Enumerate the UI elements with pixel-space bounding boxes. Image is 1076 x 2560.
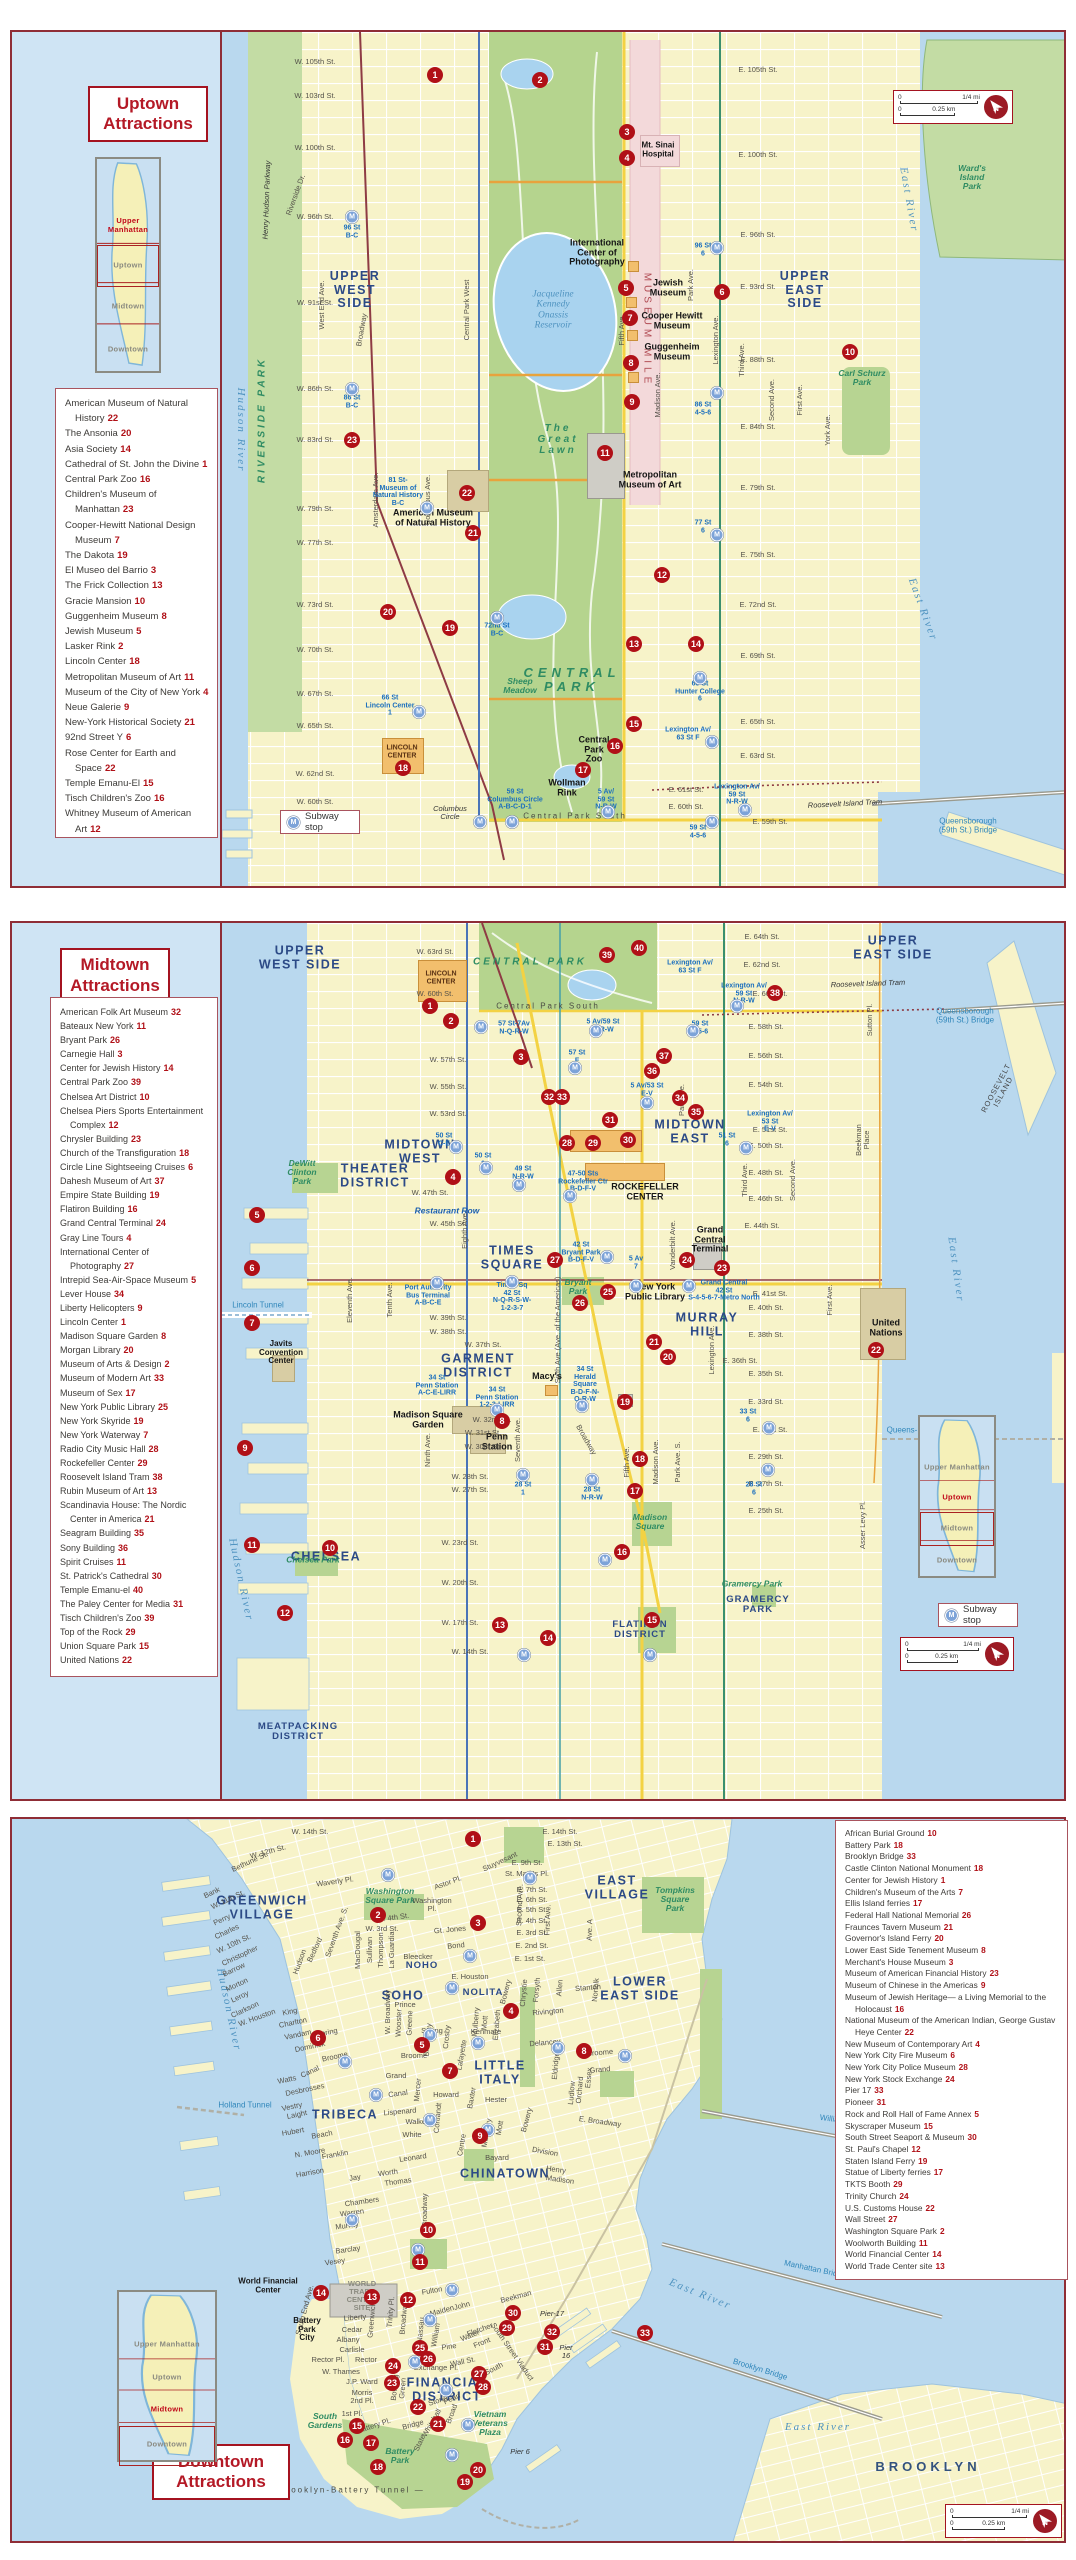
locator-upper-manhattan[interactable]: Upper Manhattan (119, 2340, 215, 2349)
attraction-new-york-skyride[interactable]: New York Skyride19 (60, 1414, 213, 1428)
compass-icon: N (1033, 2509, 1057, 2533)
attraction-bryant-park[interactable]: Bryant Park26 (60, 1033, 213, 1047)
attraction-circle-line-sightseeing-cruises[interactable]: Circle Line Sightseeing Cruises6 (60, 1160, 213, 1174)
attraction-central-park-zoo[interactable]: Central Park Zoo39 (60, 1075, 213, 1089)
attraction-church-of-the-transfiguration[interactable]: Church of the Transfiguration18 (60, 1146, 213, 1160)
attraction-guggenheim-museum[interactable]: Guggenheim Museum8 (65, 609, 213, 624)
attraction-pier-17[interactable]: Pier 1733 (845, 2085, 1063, 2097)
attraction-carnegie-hall[interactable]: Carnegie Hall3 (60, 1047, 213, 1061)
locator-uptown[interactable]: Uptown (119, 2373, 215, 2382)
locator-downtown[interactable]: Downtown (920, 1556, 994, 1565)
attraction-madison-square-garden[interactable]: Madison Square Garden8 (60, 1329, 213, 1343)
nyc-attractions-map-page: UPPER WEST SIDEUPPER EAST SIDEHudson Riv… (0, 0, 1076, 2560)
attraction-world-financial-center[interactable]: World Financial Center14 (845, 2249, 1063, 2261)
attraction-center-for-jewish-history[interactable]: Center for Jewish History1 (845, 1875, 1063, 1887)
attraction-top-of-the-rock[interactable]: Top of the Rock29 (60, 1625, 213, 1639)
attraction-trinity-church[interactable]: Trinity Church24 (845, 2191, 1063, 2203)
attraction-gracie-mansion[interactable]: Gracie Mansion10 (65, 594, 213, 609)
locator-downtown[interactable]: Downtown (119, 2440, 215, 2449)
attraction-brooklyn-bridge[interactable]: Brooklyn Bridge33 (845, 1851, 1063, 1863)
subway-stop-icon: M (287, 816, 300, 829)
locator-midtown[interactable]: Midtown (97, 302, 159, 311)
svg-text:N: N (1042, 2518, 1048, 2527)
locator-midtown[interactable]: Midtown (920, 1524, 994, 1533)
attraction-asia-society[interactable]: Asia Society14 (65, 442, 213, 457)
attraction-new-museum-of-contemporary-art[interactable]: New Museum of Contemporary Art4 (845, 2039, 1063, 2051)
attraction-st-patrick-s-cathedral[interactable]: St. Patrick's Cathedral30 (60, 1569, 213, 1583)
attraction-liberty-helicopters[interactable]: Liberty Helicopters9 (60, 1301, 213, 1315)
svg-text:N: N (994, 1651, 1000, 1660)
attraction-the-dakota[interactable]: The Dakota19 (65, 548, 213, 563)
attraction-new-york-city-fire-museum[interactable]: New York City Fire Museum6 (845, 2050, 1063, 2062)
midtown-locator-inset: Upper Manhattan Uptown Midtown Downtown (918, 1415, 996, 1578)
attraction-children-s-museum-of-manhattan[interactable]: Children's Museum of Manhattan23 (65, 487, 213, 517)
attraction-united-nations[interactable]: United Nations22 (60, 1653, 213, 1667)
attraction-merchant-s-house-museum[interactable]: Merchant's House Museum3 (845, 1957, 1063, 1969)
attraction-lasker-rink[interactable]: Lasker Rink2 (65, 639, 213, 654)
subway-legend-label: Subway stop (963, 1604, 1011, 1626)
attraction-intrepid-sea-air-space-museum[interactable]: Intrepid Sea-Air-Space Museum5 (60, 1273, 213, 1287)
attraction-central-park-zoo[interactable]: Central Park Zoo16 (65, 472, 213, 487)
attraction-tkts-booth[interactable]: TKTS Booth29 (845, 2179, 1063, 2191)
attraction-whitney-museum-of-american-art[interactable]: Whitney Museum of American Art12 (65, 806, 213, 836)
attraction-rockefeller-center[interactable]: Rockefeller Center29 (60, 1456, 213, 1470)
attraction-metropolitan-museum-of-art[interactable]: Metropolitan Museum of Art11 (65, 670, 213, 685)
attraction-lower-east-side-tenement-museum[interactable]: Lower East Side Tenement Museum8 (845, 1945, 1063, 1957)
attraction-staten-island-ferry[interactable]: Staten Island Ferry19 (845, 2156, 1063, 2168)
attraction-sony-building[interactable]: Sony Building36 (60, 1541, 213, 1555)
attraction-tisch-children-s-zoo[interactable]: Tisch Children's Zoo39 (60, 1611, 213, 1625)
attraction-new-york-waterway[interactable]: New York Waterway7 (60, 1428, 213, 1442)
svg-text:N: N (993, 104, 999, 113)
attraction-tisch-children-s-zoo[interactable]: Tisch Children's Zoo16 (65, 791, 213, 806)
downtown-locator-inset: Upper Manhattan Uptown Midtown Downtown (117, 2290, 217, 2462)
attraction-washington-square-park[interactable]: Washington Square Park2 (845, 2226, 1063, 2238)
attraction-children-s-museum-of-the-arts[interactable]: Children's Museum of the Arts7 (845, 1887, 1063, 1899)
attraction-morgan-library[interactable]: Morgan Library20 (60, 1343, 213, 1357)
attraction-museum-of-the-city-of-new-york[interactable]: Museum of the City of New York4 (65, 685, 213, 700)
attraction-south-street-seaport-museum[interactable]: South Street Seaport & Museum30 (845, 2132, 1063, 2144)
attraction-rose-center-for-earth-and-space[interactable]: Rose Center for Earth and Space22 (65, 746, 213, 776)
attraction-museum-of-arts-design[interactable]: Museum of Arts & Design2 (60, 1357, 213, 1371)
attraction-statue-of-liberty-ferries[interactable]: Statue of Liberty ferries17 (845, 2167, 1063, 2179)
attraction-dahesh-museum-of-art[interactable]: Dahesh Museum of Art37 (60, 1174, 213, 1188)
attraction-wollman-rink[interactable]: Wollman Rink17 (65, 837, 213, 838)
attraction-roosevelt-island-tram[interactable]: Roosevelt Island Tram38 (60, 1470, 213, 1484)
attraction-temple-emanu-el[interactable]: Temple Emanu-el40 (60, 1583, 213, 1597)
attraction-the-frick-collection[interactable]: The Frick Collection13 (65, 578, 213, 593)
attraction-flatiron-building[interactable]: Flatiron Building16 (60, 1202, 213, 1216)
uptown-scale-bar: 01/4 mi 00.25 km N (893, 90, 1013, 124)
attraction-museum-of-sex[interactable]: Museum of Sex17 (60, 1386, 213, 1400)
attraction-american-folk-art-museum[interactable]: American Folk Art Museum32 (60, 1005, 213, 1019)
subway-legend-label: Subway stop (305, 811, 353, 833)
attraction-scandinavia-house-the-nordic-center-in-a[interactable]: Scandinavia House: The Nordic Center in … (60, 1498, 213, 1526)
attraction-cooper-hewitt-national-design-museum[interactable]: Cooper-Hewitt National Design Museum7 (65, 518, 213, 548)
attraction-museum-of-modern-art[interactable]: Museum of Modern Art33 (60, 1371, 213, 1385)
attraction-museum-of-jewish-heritage-a-living-memor[interactable]: Museum of Jewish Heritage— a Living Memo… (845, 1992, 1063, 2015)
attraction-st-paul-s-chapel[interactable]: St. Paul's Chapel12 (845, 2144, 1063, 2156)
midtown-subway-legend: M Subway stop (938, 1603, 1018, 1627)
attraction-el-museo-del-barrio[interactable]: El Museo del Barrio3 (65, 563, 213, 578)
attraction-empire-state-building[interactable]: Empire State Building19 (60, 1188, 213, 1202)
downtown-scale-bar: 01/4 mi 00.25 km N (945, 2504, 1062, 2538)
attraction-woolworth-building[interactable]: Woolworth Building11 (845, 2238, 1063, 2250)
attraction-ellis-island-ferries[interactable]: Ellis Island ferries17 (845, 1898, 1063, 1910)
attraction-center-for-jewish-history[interactable]: Center for Jewish History14 (60, 1061, 213, 1075)
uptown-attractions-list: American Museum of Natural History22The … (55, 388, 218, 838)
attraction-gray-line-tours[interactable]: Gray Line Tours4 (60, 1231, 213, 1245)
locator-uptown[interactable]: Uptown (97, 261, 159, 270)
uptown-title: Uptown Attractions (88, 86, 208, 142)
attraction-museum-of-american-financial-history[interactable]: Museum of American Financial History23 (845, 1968, 1063, 1980)
attraction-wall-street[interactable]: Wall Street27 (845, 2214, 1063, 2226)
attraction-castle-clinton-national-monument[interactable]: Castle Clinton National Monument18 (845, 1863, 1063, 1875)
uptown-subway-legend: M Subway stop (280, 810, 360, 834)
locator-upper-manhattan[interactable]: Upper Manhattan (920, 1463, 994, 1472)
attraction-battery-park[interactable]: Battery Park18 (845, 1840, 1063, 1852)
attraction-lincoln-center[interactable]: Lincoln Center18 (65, 654, 213, 669)
attraction-seagram-building[interactable]: Seagram Building35 (60, 1526, 213, 1540)
attraction-pioneer[interactable]: Pioneer31 (845, 2097, 1063, 2109)
attraction-governor-s-island-ferry[interactable]: Governor's Island Ferry20 (845, 1933, 1063, 1945)
downtown-attractions-list: African Burial Ground10Battery Park18Bro… (835, 1820, 1068, 2280)
attraction-bateaux-new-york[interactable]: Bateaux New York11 (60, 1019, 213, 1033)
locator-midtown[interactable]: Midtown (119, 2405, 215, 2414)
uptown-locator-inset: Upper Manhattan Uptown Midtown Downtown (95, 157, 161, 373)
attraction-the-paley-center-for-media[interactable]: The Paley Center for Media31 (60, 1597, 213, 1611)
attraction-neue-galerie[interactable]: Neue Galerie9 (65, 700, 213, 715)
attraction-grand-central-terminal[interactable]: Grand Central Terminal24 (60, 1216, 213, 1230)
midtown-attractions-list: American Folk Art Museum32Bateaux New Yo… (50, 997, 218, 1677)
subway-stop-icon: M (945, 1609, 958, 1622)
attraction-chelsea-piers-sports-entertainment-compl[interactable]: Chelsea Piers Sports Entertainment Compl… (60, 1104, 213, 1132)
attraction-african-burial-ground[interactable]: African Burial Ground10 (845, 1828, 1063, 1840)
attraction-union-square-park[interactable]: Union Square Park15 (60, 1639, 213, 1653)
attraction-fraunces-tavern-museum[interactable]: Fraunces Tavern Museum21 (845, 1922, 1063, 1934)
attraction-temple-emanu-el[interactable]: Temple Emanu-El15 (65, 776, 213, 791)
midtown-title: Midtown Attractions (60, 948, 170, 1003)
locator-uptown[interactable]: Uptown (920, 1493, 994, 1502)
attraction-rock-and-roll-hall-of-fame-annex[interactable]: Rock and Roll Hall of Fame Annex5 (845, 2109, 1063, 2121)
attraction-skyscraper-museum[interactable]: Skyscraper Museum15 (845, 2121, 1063, 2133)
attraction-federal-hall-national-memorial[interactable]: Federal Hall National Memorial26 (845, 1910, 1063, 1922)
attraction-radio-city-music-hall[interactable]: Radio City Music Hall28 (60, 1442, 213, 1456)
attraction-92nd-street-y[interactable]: 92nd Street Y6 (65, 730, 213, 745)
attraction-chrysler-building[interactable]: Chrysler Building23 (60, 1132, 213, 1146)
locator-upper-manhattan[interactable]: Upper Manhattan (97, 216, 159, 234)
attraction-new-york-public-library[interactable]: New York Public Library25 (60, 1400, 213, 1414)
attraction-jewish-museum[interactable]: Jewish Museum5 (65, 624, 213, 639)
attraction-museum-of-chinese-in-the-americas[interactable]: Museum of Chinese in the Americas9 (845, 1980, 1063, 1992)
attraction-spirit-cruises[interactable]: Spirit Cruises11 (60, 1555, 213, 1569)
midtown-scale-bar: 01/4 mi 00.25 km N (900, 1637, 1014, 1671)
attraction-national-museum-of-the-american-indian-g[interactable]: National Museum of the American Indian, … (845, 2015, 1063, 2038)
attraction-lincoln-center[interactable]: Lincoln Center1 (60, 1315, 213, 1329)
locator-downtown[interactable]: Downtown (97, 345, 159, 354)
attraction-u-s-customs-house[interactable]: U.S. Customs House22 (845, 2203, 1063, 2215)
attraction-lever-house[interactable]: Lever House34 (60, 1287, 213, 1301)
attraction-new-york-historical-society[interactable]: New-York Historical Society21 (65, 715, 213, 730)
attraction-international-center-of-photography[interactable]: International Center of Photography27 (60, 1245, 213, 1273)
attraction-the-ansonia[interactable]: The Ansonia20 (65, 426, 213, 441)
attraction-rubin-museum-of-art[interactable]: Rubin Museum of Art13 (60, 1484, 213, 1498)
compass-icon: N (985, 1642, 1009, 1666)
attraction-new-york-city-police-museum[interactable]: New York City Police Museum28 (845, 2062, 1063, 2074)
attraction-world-trade-center-site[interactable]: World Trade Center site13 (845, 2261, 1063, 2273)
compass-icon: N (984, 95, 1008, 119)
attraction-cathedral-of-st-john-the-divine[interactable]: Cathedral of St. John the Divine1 (65, 457, 213, 472)
attraction-chelsea-art-district[interactable]: Chelsea Art District10 (60, 1090, 213, 1104)
attraction-american-museum-of-natural-history[interactable]: American Museum of Natural History22 (65, 396, 213, 426)
attraction-new-york-stock-exchange[interactable]: New York Stock Exchange24 (845, 2074, 1063, 2086)
